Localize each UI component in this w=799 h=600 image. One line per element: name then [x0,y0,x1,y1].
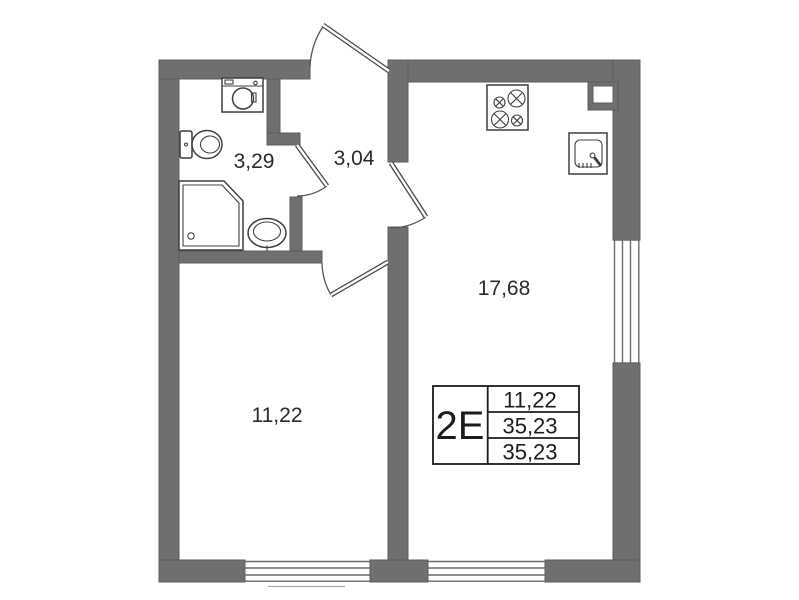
kitchen-door [391,163,426,228]
toilet-icon [180,131,222,159]
shower-icon [179,181,243,250]
wall-bath-right-upper [267,79,280,133]
window-bottom-left [245,562,370,587]
kitchen-living-area-label: 17,68 [478,277,531,300]
wall-bath-right-lower [290,197,302,251]
wall-hall-bottom [179,251,322,263]
room-labels: 3,29 3,04 17,68 11,22 [234,147,531,427]
wall-top-left [159,60,310,79]
wall-bottom-right [545,560,640,582]
kitchen-door-arc [391,217,426,228]
entrance-door [310,25,389,71]
washing-machine-icon [222,78,263,112]
room-area-label: 11,22 [252,404,303,427]
entrance-door-arc [310,25,324,67]
bath-sink-icon [248,219,286,252]
wall-right-lower [613,363,640,582]
room-door [322,262,388,295]
window-right [613,240,640,363]
bathroom-area-label: 3,29 [234,150,275,173]
unit-type-label: 2E [436,404,485,448]
bathroom-door [297,145,327,196]
wall-bottom-left [159,560,245,582]
vent-shaft-icon [593,86,613,103]
window-bottom-right [428,562,545,582]
info-table-row3: 35,23 [502,440,557,465]
stove-icon [487,85,528,130]
wall-bath-jog [267,133,300,145]
room-door-arc [322,263,331,295]
wall-top-kitchen [388,60,640,82]
kitchen-sink-icon [569,133,607,174]
wall-bottom-pier [370,560,428,582]
info-table: 2E 11,22 35,23 35,23 [433,386,579,465]
wall-divider-lower [388,227,408,560]
hallway-area-label: 3,04 [334,147,375,170]
floor-plan-page: 3,29 3,04 17,68 11,22 2E 11,22 35,23 35,… [0,0,799,600]
wall-left [159,60,179,582]
walls [159,60,640,582]
bathroom-door-arc [297,186,327,196]
info-table-row2: 35,23 [502,414,557,439]
info-table-row1: 11,22 [503,388,556,413]
wall-divider-upper [388,60,408,162]
floor-plan-svg: 3,29 3,04 17,68 11,22 2E 11,22 35,23 35,… [0,0,799,600]
